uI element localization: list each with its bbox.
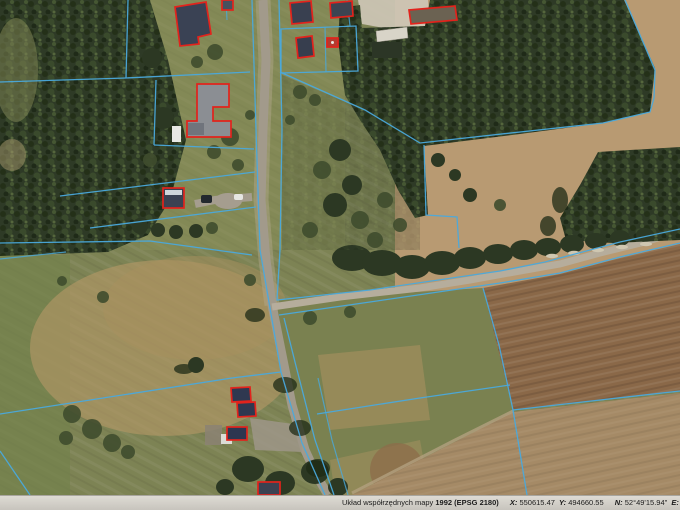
car <box>201 195 212 203</box>
building-outline[interactable] <box>290 1 313 24</box>
building-outline[interactable] <box>222 0 233 10</box>
building-outline[interactable] <box>409 6 457 24</box>
y-value: 494660.55 <box>568 498 603 507</box>
building-outline[interactable] <box>227 427 247 440</box>
e-label: E: <box>671 498 679 507</box>
building-outline[interactable] <box>296 36 314 58</box>
crs-label: Układ współrzędnych mapy <box>342 498 433 507</box>
white-car <box>234 194 243 200</box>
dark-structure <box>372 42 402 58</box>
n-value: 52°49'15.94" <box>625 498 668 507</box>
x-value: 550615.47 <box>519 498 554 507</box>
building-outline[interactable] <box>330 1 353 18</box>
white-shed <box>172 126 181 142</box>
x-label: X: <box>510 498 518 507</box>
gis-app-window: Układ współrzędnych mapy 1992 (EPSG 2180… <box>0 0 680 510</box>
roof-shade <box>188 123 204 135</box>
status-bar: Układ współrzędnych mapy 1992 (EPSG 2180… <box>0 495 680 510</box>
y-label: Y: <box>559 498 566 507</box>
n-label: N: <box>615 498 623 507</box>
coordinate-readout: Układ współrzędnych mapy 1992 (EPSG 2180… <box>342 496 680 510</box>
building-outline[interactable] <box>258 482 280 495</box>
building-outline[interactable] <box>237 402 256 417</box>
roof-highlight <box>165 190 182 195</box>
farm-shed <box>205 425 222 445</box>
crs-value: 1992 (EPSG 2180) <box>435 498 498 507</box>
building-outline[interactable] <box>231 387 251 402</box>
rooflight <box>331 41 334 44</box>
map-viewport[interactable] <box>0 0 680 495</box>
